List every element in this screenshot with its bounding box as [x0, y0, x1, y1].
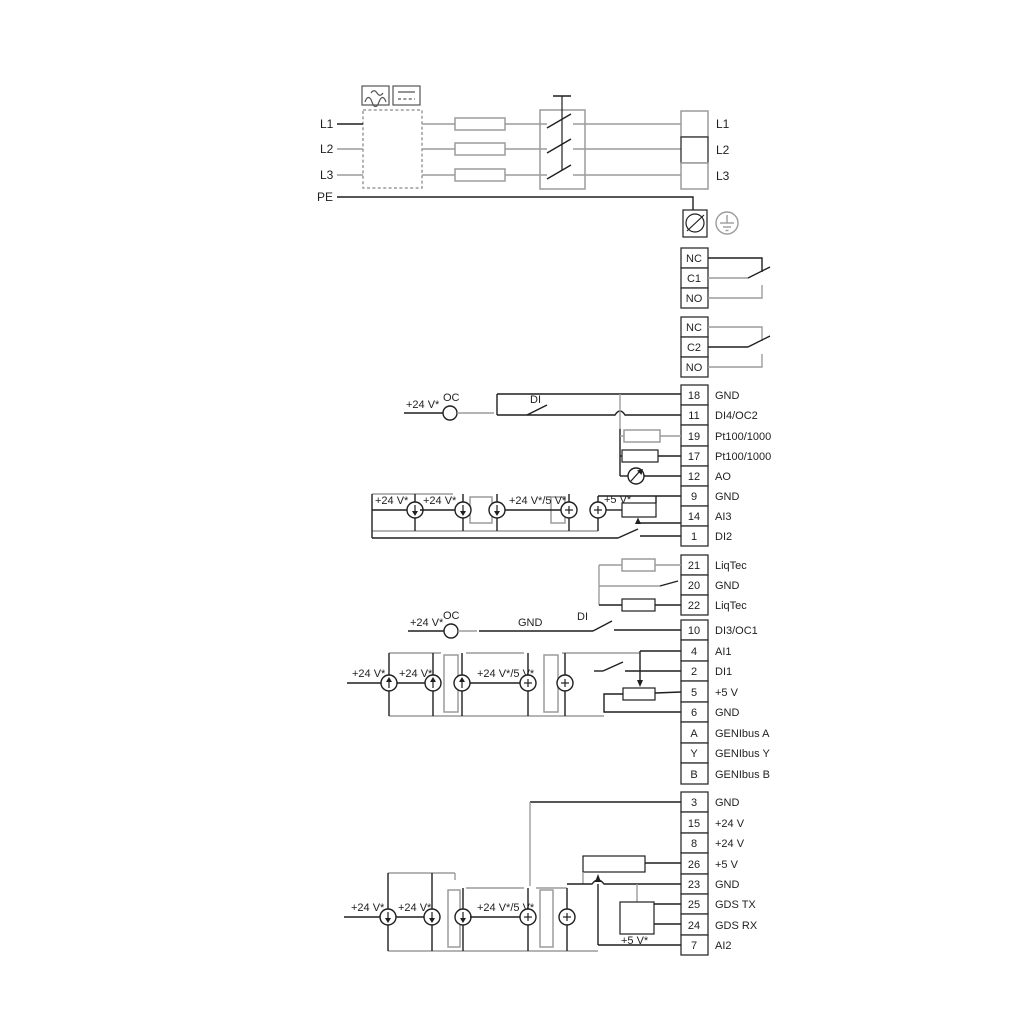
open-collector-icon	[444, 624, 458, 638]
ao-meter-icon	[620, 468, 681, 484]
fuse-l2	[455, 143, 505, 155]
terminal-label: AI1	[715, 646, 732, 658]
terminal-number: 22	[688, 600, 700, 612]
relay1-contact	[748, 267, 770, 278]
terminal-number: 23	[688, 879, 700, 891]
plus24v-label: +24 V*	[352, 668, 386, 680]
current-source-icon	[561, 502, 577, 518]
di1-switch	[603, 662, 623, 671]
ai3-wiring-options: +24 V* +24 V* +24 V*/5 V*	[372, 494, 681, 538]
current-source-up-icon	[425, 675, 441, 691]
current-sink-icon	[455, 502, 471, 518]
open-collector-icon	[443, 406, 457, 420]
terminal-label: GND	[715, 390, 740, 402]
terminal-number: 15	[688, 818, 700, 830]
terminal-label: GND	[715, 797, 740, 809]
terminal-number: 18	[688, 390, 700, 402]
wiring-diagram-page: L1 L2 L3 PE	[0, 0, 1024, 1024]
liqtec-sensor-21	[622, 559, 655, 571]
terminal-number: 10	[688, 625, 700, 637]
label-l3-in: L3	[320, 168, 334, 182]
terminal-number: Y	[690, 748, 698, 760]
ai2-wiring-options: +24 V* +24 V* +24 V*/5 V*	[344, 802, 681, 951]
current-source-up-icon	[454, 675, 470, 691]
label-l2-in: L2	[320, 142, 334, 156]
wiring-diagram: L1 L2 L3 PE	[0, 0, 1024, 1024]
screw-terminal-icon	[683, 210, 707, 237]
plus24v-label: +24 V*	[375, 495, 409, 507]
current-source-icon	[520, 909, 536, 925]
io-terminal-block-c: 3 15 8 26 23 25 24 7 GND +24 V +24 V +5 …	[681, 792, 758, 955]
terminal-number: B	[690, 769, 697, 781]
current-sink-icon	[424, 909, 440, 925]
mains-terminal-block: L1 L2 L3	[681, 111, 730, 189]
terminal-label: GENIbus B	[715, 769, 770, 781]
di2-switch	[618, 529, 638, 538]
gds-module-box: +5 V*	[620, 884, 681, 947]
option-bracket	[544, 655, 558, 712]
terminal-label: GND	[715, 879, 740, 891]
relay2-nc: NC	[686, 322, 702, 334]
wiper-arrow-icon	[595, 874, 601, 882]
terminal-label: DI4/OC2	[715, 410, 758, 422]
di4-switch	[527, 405, 547, 415]
terminal-label: GDS TX	[715, 899, 756, 911]
di-label: DI	[530, 394, 541, 406]
plus24v-label: +24 V*	[423, 495, 457, 507]
terminal-label: LiqTec	[715, 600, 747, 612]
terminal-number: 6	[691, 707, 697, 719]
current-source-icon	[557, 675, 573, 691]
terminal-label: LiqTec	[715, 560, 747, 572]
pt100-resistor-19	[624, 430, 660, 442]
relay-1-block: NC C1 NO	[681, 248, 770, 308]
label-l3-out: L3	[716, 169, 730, 183]
terminal-number: 7	[691, 940, 697, 952]
terminal-label: DI1	[715, 666, 732, 678]
relay2-c2: C2	[687, 342, 701, 354]
earth-ground-icon	[716, 212, 738, 234]
io-terminal-block-b: 10 4 2 5 6 A Y B DI3/OC1 AI1 DI1 +5 V GN…	[681, 620, 770, 784]
label-l1-in: L1	[320, 117, 334, 131]
oc-label: OC	[443, 610, 460, 622]
terminal-label: DI3/OC1	[715, 625, 758, 637]
terminal-label: Pt100/1000	[715, 451, 771, 463]
relay-2-block: NC C2 NO	[681, 317, 770, 377]
fuse-l1	[455, 118, 505, 130]
terminal-number: 24	[688, 920, 700, 932]
terminal-label: DI2	[715, 531, 732, 543]
terminal-label: GENIbus A	[715, 728, 770, 740]
terminal-label: AI2	[715, 940, 732, 952]
terminal-label: +5 V	[715, 687, 739, 699]
relay2-contact	[748, 336, 770, 347]
terminal-number: 25	[688, 899, 700, 911]
terminal-number: 14	[688, 511, 700, 523]
terminal-number: 26	[688, 859, 700, 871]
mains-input-section: L1 L2 L3 PE	[317, 86, 738, 237]
ai1-wiring-options: +24 V* +24 V* +24 V*/5 V*	[347, 651, 681, 716]
terminal-label: AO	[715, 471, 731, 483]
terminal-label: GND	[715, 491, 740, 503]
plus24v-label: +24 V*	[351, 902, 385, 914]
terminal-number: 21	[688, 560, 700, 572]
terminal-number: 3	[691, 797, 697, 809]
terminal-label: GDS RX	[715, 920, 758, 932]
terminal-label: GND	[715, 580, 740, 592]
terminal-number: 5	[691, 687, 697, 699]
oc-label: OC	[443, 392, 460, 404]
current-source-up-icon	[381, 675, 397, 691]
plus24v-label: +24 V*	[410, 617, 444, 629]
current-sink-icon	[489, 502, 505, 518]
ai2-potentiometer	[583, 856, 645, 872]
relay1-nc: NC	[686, 253, 702, 265]
ai1-potentiometer	[623, 688, 655, 700]
current-source-icon	[520, 675, 536, 691]
terminal-label: AI3	[715, 511, 732, 523]
rfi-filter-dashed-box	[363, 110, 422, 188]
terminal-number: 20	[688, 580, 700, 592]
terminal-number: 2	[691, 666, 697, 678]
terminal-number: 11	[688, 410, 699, 422]
terminal-number: 19	[688, 431, 700, 443]
terminal-label: Pt100/1000	[715, 431, 771, 443]
liqtec-terminal-block: 21 20 22 LiqTec GND LiqTec	[599, 555, 747, 615]
wiper-arrow-icon	[637, 680, 643, 687]
ac-symbol-box	[362, 86, 389, 107]
relay1-c1: C1	[687, 273, 701, 285]
io-terminal-block-a: 18 11 19 17 12 9 14 1 GND DI4/OC2 Pt100/…	[681, 385, 771, 546]
liqtec-sensor-22	[622, 599, 655, 611]
pt100-resistor-17	[622, 450, 658, 462]
terminal-label: GENIbus Y	[715, 748, 770, 760]
terminal-number: 12	[688, 471, 700, 483]
terminal-label: +24 V	[715, 838, 745, 850]
plus24v-5v-label: +24 V*/5 V*	[509, 495, 567, 507]
label-l2-out: L2	[716, 143, 730, 157]
di3-switch	[593, 621, 612, 631]
plus24v-label: +24 V*	[406, 399, 440, 411]
label-pe: PE	[317, 190, 333, 204]
label-l1-out: L1	[716, 117, 730, 131]
current-sink-icon	[380, 909, 396, 925]
terminal-label: GND	[715, 707, 740, 719]
di3-oc1-circuit: +24 V* OC GND DI	[408, 610, 681, 638]
pt100-and-ao-circuit	[620, 430, 681, 484]
gnd-label: GND	[518, 617, 543, 629]
terminal-number: 8	[691, 838, 697, 850]
di-label: DI	[577, 611, 588, 623]
terminal-number: 17	[688, 451, 700, 463]
terminal-number: 4	[691, 646, 697, 658]
fuse-l3	[455, 169, 505, 181]
relay1-no: NO	[686, 293, 703, 305]
terminal-number: 9	[691, 491, 697, 503]
terminal-label: +5 V	[715, 859, 739, 871]
relay2-no: NO	[686, 362, 703, 374]
terminal-number: 1	[691, 531, 697, 543]
dc-symbol-box	[393, 86, 420, 105]
current-source-icon	[559, 909, 575, 925]
current-sink-icon	[455, 909, 471, 925]
terminal-number: A	[690, 728, 698, 740]
di4-oc2-circuit: +24 V* OC DI	[404, 392, 681, 476]
pe-circuit	[337, 197, 738, 237]
terminal-label: +24 V	[715, 818, 745, 830]
fuses	[455, 118, 505, 181]
option-bracket	[540, 890, 553, 947]
